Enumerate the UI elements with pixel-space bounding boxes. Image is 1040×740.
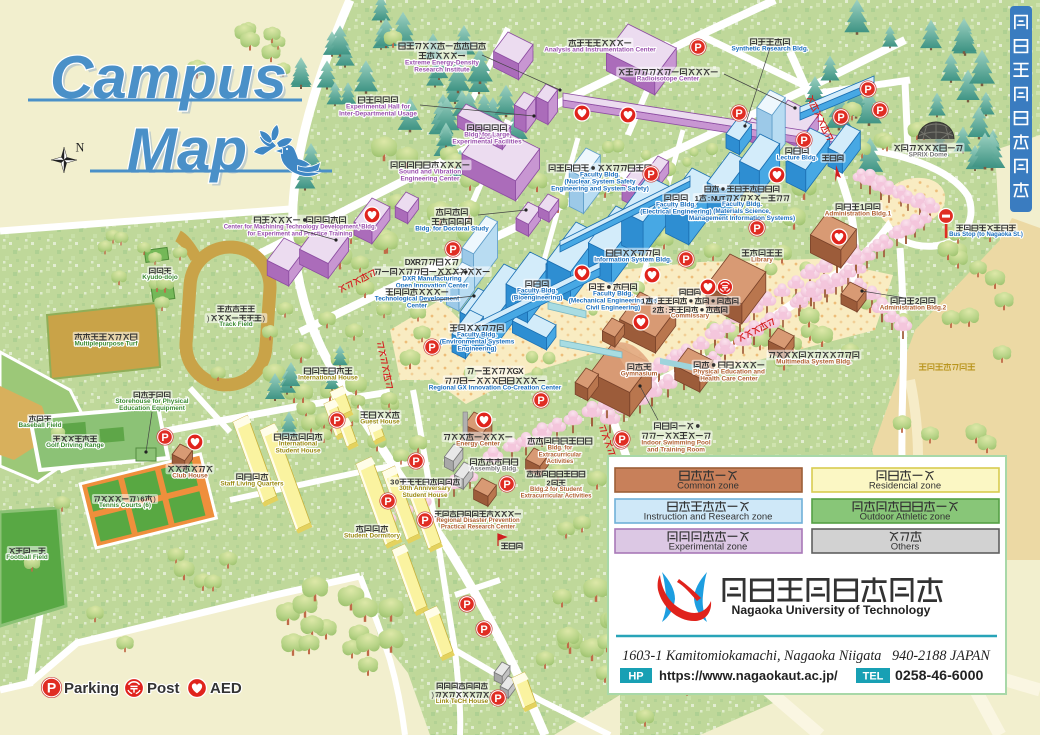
svg-text:Student House: Student House — [402, 492, 448, 499]
svg-text:Instruction and Research zone: Instruction and Research zone — [644, 512, 773, 523]
svg-text:Administration Bldg.1: Administration Bldg.1 — [825, 211, 892, 218]
svg-text:(Environmental Systems: (Environmental Systems — [440, 339, 515, 346]
svg-text:AED: AED — [210, 680, 242, 697]
svg-text:Club House: Club House — [172, 473, 208, 480]
svg-text:Engineering Center: Engineering Center — [401, 176, 460, 183]
svg-text:Civil Engineering): Civil Engineering) — [586, 305, 640, 312]
svg-text:Faculty Bldg.: Faculty Bldg. — [656, 202, 696, 209]
svg-text:Lecture Bldg.: Lecture Bldg. — [777, 155, 818, 162]
svg-text:P: P — [735, 108, 742, 120]
svg-text:Faculty Bldg.: Faculty Bldg. — [722, 201, 762, 208]
svg-text:P: P — [384, 496, 391, 508]
svg-text:Education Equipment: Education Equipment — [119, 405, 186, 412]
svg-text:Sound and Vibration: Sound and Vibration — [399, 169, 461, 176]
svg-text:P: P — [47, 679, 56, 695]
svg-text:Gymnasium: Gymnasium — [621, 371, 658, 378]
svg-text:Bldg. for Doctoral Study: Bldg. for Doctoral Study — [415, 225, 489, 232]
svg-text:30th Anniversary: 30th Anniversary — [399, 485, 451, 492]
svg-text:Faculty Bldg.: Faculty Bldg. — [517, 288, 557, 295]
svg-text:Experimental zone: Experimental zone — [669, 542, 748, 553]
svg-text::: : — [654, 297, 656, 306]
svg-text:(Bioengineering): (Bioengineering) — [512, 295, 563, 302]
svg-text:Energy Center: Energy Center — [456, 441, 500, 448]
svg-text:P: P — [161, 432, 168, 444]
svg-text:Guest House: Guest House — [360, 419, 400, 426]
svg-text:Assembly Bldg.: Assembly Bldg. — [470, 466, 518, 473]
svg-text:P: P — [618, 434, 625, 446]
svg-text:Staff Living Quarters: Staff Living Quarters — [220, 481, 284, 488]
svg-text:SPRIX Dome: SPRIX Dome — [909, 152, 948, 159]
svg-text:Kyudo-dojo: Kyudo-dojo — [142, 274, 178, 281]
svg-text:P: P — [800, 135, 807, 147]
svg-text:1: 1 — [641, 297, 645, 306]
svg-text:2: 2 — [652, 306, 656, 315]
svg-text:Engineering and System Safety): Engineering and System Safety) — [551, 186, 649, 193]
svg-text:Bldg. for: Bldg. for — [548, 446, 573, 452]
svg-text:P: P — [753, 223, 760, 235]
svg-text:N: N — [76, 140, 85, 154]
svg-text:Baseball Field: Baseball Field — [19, 422, 62, 429]
svg-text:Bldg. for Large: Bldg. for Large — [464, 132, 510, 139]
svg-text:1603-1 Kamitomiokamachi, Nagao: 1603-1 Kamitomiokamachi, Nagaoka Niigata… — [622, 648, 991, 664]
svg-text:Faculty Bldg.: Faculty Bldg. — [580, 172, 620, 179]
svg-text:Commissary: Commissary — [671, 313, 710, 320]
svg-text:P: P — [412, 456, 419, 468]
svg-text:Bus Stop (to Nagaoka St.): Bus Stop (to Nagaoka St.) — [949, 232, 1023, 238]
svg-text:for Experiment and Practice Tr: for Experiment and Practice Training — [248, 231, 353, 237]
svg-text:P: P — [647, 169, 654, 181]
svg-text:(Materials Science,: (Materials Science, — [713, 208, 771, 215]
svg-text:Management Information Systems: Management Information Systems) — [689, 215, 795, 222]
svg-text:Outdoor Athletic zone: Outdoor Athletic zone — [860, 512, 951, 523]
svg-text:Analysis and Instrumentation C: Analysis and Instrumentation Center — [544, 47, 656, 54]
svg-text:Research Institute: Research Institute — [414, 66, 470, 73]
svg-text:Experimental Facilities: Experimental Facilities — [452, 139, 522, 146]
svg-text:Golf Driving Range: Golf Driving Range — [46, 442, 104, 449]
svg-text:Parking: Parking — [64, 680, 119, 697]
svg-text:Student House: Student House — [275, 448, 321, 455]
svg-text:Extracurricular Activities: Extracurricular Activities — [521, 493, 592, 499]
svg-text:P: P — [480, 624, 487, 636]
svg-text:Indoor Swimming Pool: Indoor Swimming Pool — [641, 439, 710, 446]
svg-text:Multimedia System Bldg.: Multimedia System Bldg. — [776, 359, 852, 366]
svg-text:P: P — [421, 515, 428, 527]
svg-text:Information System Bldg.: Information System Bldg. — [594, 257, 672, 264]
svg-text:Synthetic Research Bldg.: Synthetic Research Bldg. — [731, 46, 808, 53]
svg-text:Inter-Departmental Usage: Inter-Departmental Usage — [339, 111, 417, 118]
svg-text:3: 3 — [390, 478, 394, 487]
svg-text:0258-46-6000: 0258-46-6000 — [895, 668, 983, 684]
svg-text:P: P — [876, 105, 883, 117]
svg-text:Engineering): Engineering) — [457, 346, 496, 353]
svg-text:P: P — [537, 395, 544, 407]
svg-text:Practical Research Center: Practical Research Center — [441, 525, 516, 531]
svg-text:Faculty Bldg.: Faculty Bldg. — [457, 332, 497, 339]
svg-text:Multiplepurpose Turf: Multiplepurpose Turf — [74, 341, 138, 348]
svg-text:Bldg.2 for Student: Bldg.2 for Student — [530, 487, 582, 493]
svg-text:R: R — [415, 258, 421, 267]
svg-text:X: X — [518, 367, 524, 376]
svg-text:Map: Map — [127, 116, 247, 183]
svg-text:Activities: Activities — [547, 459, 574, 465]
svg-text:Others: Others — [891, 542, 920, 553]
svg-text:Administration Bldg.2: Administration Bldg.2 — [880, 305, 947, 312]
svg-text:Football Field: Football Field — [6, 554, 48, 561]
svg-text:P: P — [449, 244, 456, 256]
svg-text:Track Field: Track Field — [219, 321, 252, 328]
svg-text:International House: International House — [298, 375, 358, 382]
svg-text:P: P — [682, 254, 689, 266]
svg-text:Nagaoka University of Techn: Nagaoka University of Technology — [732, 603, 931, 617]
svg-text:Link TeCH House: Link TeCH House — [436, 698, 489, 705]
svg-text:Storehouse for Physical: Storehouse for Physical — [115, 398, 188, 405]
svg-text:Physical Education and: Physical Education and — [693, 369, 765, 376]
svg-text:Tennis Courts (6): Tennis Courts (6) — [99, 502, 151, 509]
svg-text:Regional Disaster Prevention: Regional Disaster Prevention — [436, 518, 520, 524]
svg-text:P: P — [864, 84, 871, 96]
svg-text:Radioisotope Center: Radioisotope Center — [637, 76, 700, 83]
svg-text::: : — [665, 306, 667, 315]
svg-text:P: P — [463, 599, 470, 611]
svg-text:TEL: TEL — [863, 671, 884, 683]
svg-text:(Nuclear System Safety: (Nuclear System Safety — [564, 179, 635, 186]
svg-text:Student Dormitory: Student Dormitory — [344, 533, 401, 540]
svg-text:DXR Manufacturing: DXR Manufacturing — [402, 275, 461, 282]
svg-text:International: International — [279, 441, 318, 448]
svg-text:P: P — [494, 693, 501, 705]
svg-text:Extracurricular: Extracurricular — [539, 452, 582, 458]
svg-text:P: P — [837, 112, 844, 124]
svg-text:Common zone: Common zone — [677, 481, 739, 492]
svg-text:P: P — [503, 479, 510, 491]
svg-text:P: P — [333, 415, 340, 427]
svg-text:Experimental Hall for: Experimental Hall for — [346, 104, 410, 111]
svg-text:Center: Center — [407, 303, 428, 310]
svg-text:HP: HP — [628, 671, 643, 683]
svg-text:Regional GX Innovation Co-Crea: Regional GX Innovation Co-Creation Cente… — [429, 384, 562, 391]
svg-text:P: P — [428, 342, 435, 354]
svg-text:P: P — [694, 42, 701, 54]
svg-text:Faculty Bldg.: Faculty Bldg. — [593, 291, 633, 298]
svg-text:Health Care Center: Health Care Center — [700, 376, 758, 383]
svg-text:Extreme Energy-Density: Extreme Energy-Density — [405, 59, 479, 66]
svg-text:https://www.nagaokaut.ac.jp/: https://www.nagaokaut.ac.jp/ — [659, 668, 838, 683]
svg-text::: : — [708, 194, 711, 203]
svg-text:): ) — [431, 691, 433, 700]
svg-text:Post: Post — [147, 680, 180, 697]
svg-text:and Training Room: and Training Room — [647, 446, 705, 453]
svg-text:Library: Library — [751, 257, 773, 264]
svg-text:Residencial zone: Residencial zone — [869, 481, 941, 492]
